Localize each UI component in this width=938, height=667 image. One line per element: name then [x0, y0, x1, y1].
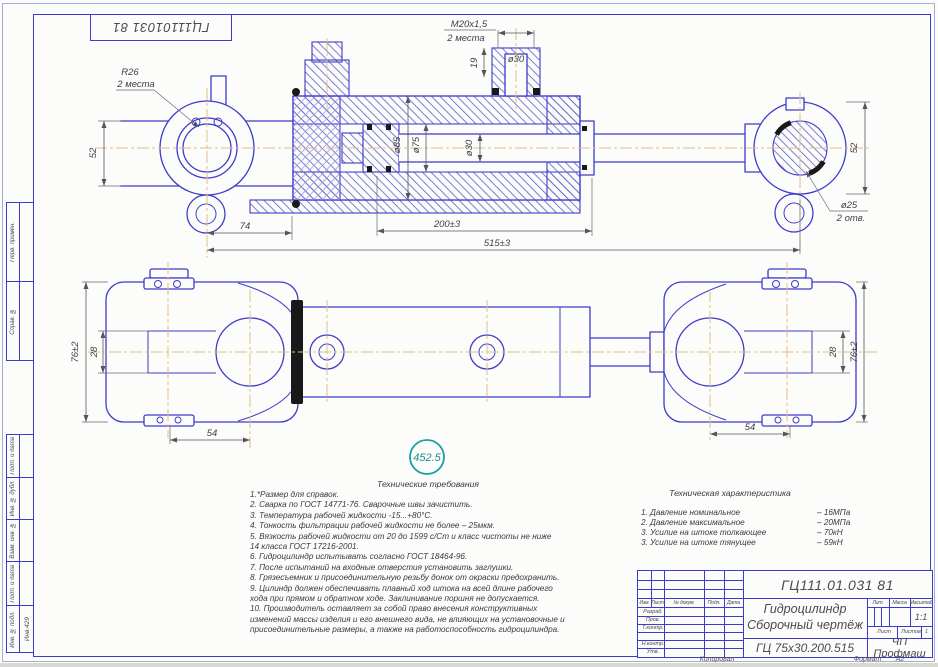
dim-label-200: 200±3 — [433, 219, 461, 230]
dim-label-515: 515±3 — [484, 238, 511, 249]
drawing-sheet: ГЦ11101031 81 Перв. примен. Справ. № Под… — [0, 0, 938, 667]
dim-label-m20-note: 2 места — [446, 33, 484, 44]
technical-requirements: 1.*Размер для справок. 2. Сварка по ГОСТ… — [250, 490, 580, 636]
dim-label-28-left: 28 — [89, 346, 100, 358]
dim-label-d75: ø75 — [411, 136, 422, 153]
dim-label-74: 74 — [240, 221, 251, 232]
dim-label-54-left: 54 — [207, 428, 218, 439]
treq-line: 1.*Размер для справок. — [250, 490, 580, 500]
tb-scale-value: 1:1 — [910, 607, 932, 626]
dim-label-d25: ø25 — [841, 200, 858, 211]
dim-label-d85: ø85 — [392, 136, 403, 153]
tb-product-name-2: Сборочный чертёж — [743, 616, 867, 634]
tb-mass-label: Масса — [889, 598, 910, 607]
treq-line: 10. Производитель оставляет за собой пра… — [250, 604, 580, 614]
position-balloon: 452.5 — [410, 440, 444, 474]
tb-col-izm: Изм. — [638, 598, 651, 607]
dim-label-r26: R26 — [121, 67, 139, 78]
tb-col-doc: № докум. — [664, 598, 704, 607]
treq-line: 7. После испытаний на входные отверстия … — [250, 563, 580, 573]
scan-edge — [0, 663, 938, 667]
plan-left-clevis — [106, 269, 300, 426]
treq-line: 3. Температура рабочей жидкости -15...+8… — [250, 511, 580, 521]
tb-sheet-label: Лист — [867, 626, 899, 638]
technical-characteristics-title: Техническая характеристика — [655, 488, 805, 498]
treq-line: 2. Сварка по ГОСТ 14771-76. Сварочные шв… — [250, 500, 580, 510]
treq-line: 4. Тонкость фильтрации рабочей жидкости … — [250, 521, 580, 531]
treq-line: присоединительные размеры, а также на ра… — [250, 625, 580, 635]
tchar-row: 3. Усилие на штоке тянущее – 59кН — [641, 538, 869, 548]
title-block: Изм. Лист № докум. Подп. Дата Разраб. Пр… — [637, 570, 933, 658]
treq-line: 6. Гидроцилиндр испытывать согласно ГОСТ… — [250, 552, 580, 562]
tb-col-list: Лист — [651, 598, 664, 607]
dim-label-76-left: 76±2 — [70, 341, 81, 363]
dim-label-52-right: 52 — [849, 142, 860, 153]
dim-label-19: 19 — [469, 57, 480, 68]
treq-line: 5. Вязкость рабочей жидкости от 20 до 15… — [250, 532, 580, 542]
treq-line: 9. Цилиндр должен обеспечивать плавный х… — [250, 584, 580, 594]
tb-sheets-value: 1 — [921, 626, 932, 638]
tb-designation: ГЦ 75х30.200.515 — [743, 638, 867, 657]
footer-copied-label: Копировал — [677, 656, 757, 663]
dim-label-54-right: 54 — [745, 422, 756, 433]
tb-doc-number: ГЦ111.01.031 81 — [743, 571, 932, 598]
footer-format-value: А2 — [888, 656, 912, 663]
footer-format-label: Формат — [845, 656, 890, 663]
plan-view — [106, 269, 856, 426]
dim-label-52-left: 52 — [88, 147, 99, 158]
technical-requirements-title: Технические требования — [348, 479, 508, 489]
tchar-row: 3. Усилие на штоке толкающее – 70кН — [641, 528, 869, 538]
dim-label-28-right: 28 — [828, 346, 839, 358]
dim-label-d30-port: ø30 — [508, 54, 525, 65]
balloon-number: 452.5 — [413, 452, 441, 464]
technical-characteristics: 1. Давление номинальное – 16МПа 2. Давле… — [641, 508, 869, 548]
dim-label-d30-rod: ø30 — [464, 139, 475, 156]
dim-label-76-right: 76±2 — [849, 341, 860, 363]
treq-line: 8. Грязесъемник и присоединительную резь… — [250, 573, 580, 583]
tb-row-razrab: Разраб. — [638, 607, 666, 616]
dim-label-m20: M20x1,5 — [451, 19, 488, 30]
dim-label-r26-note: 2 места — [116, 79, 154, 90]
main-section-view — [120, 42, 846, 233]
tb-company: ЧП Профмаш — [867, 638, 932, 657]
treq-line: изменений массы изделия и его внешнего в… — [250, 615, 580, 625]
tb-row-tkontr: Т.контр. — [638, 624, 666, 632]
tchar-row: 2. Давление максимальное – 20МПа — [641, 518, 869, 528]
tb-lit-label: Лит. — [867, 598, 889, 607]
tb-row-prov: Пров. — [638, 616, 666, 624]
tb-sheets-label: Листов — [897, 626, 923, 638]
dim-label-d25-note: 2 отв. — [836, 213, 866, 224]
tchar-row: 1. Давление номинальное – 16МПа — [641, 508, 869, 518]
tb-col-podp: Подп. — [704, 598, 724, 607]
tb-row-utv: Утв. — [638, 648, 666, 656]
right-rod-end-eye — [745, 98, 846, 232]
treq-line: хода при прямом и обратном ходе. Заклини… — [250, 594, 580, 604]
tb-scale-label: Масштаб — [910, 598, 932, 607]
treq-line: 14 класса ГОСТ 17216-2001. — [250, 542, 580, 552]
tb-row-nkontr: Н.контр. — [638, 640, 666, 648]
tb-col-data: Дата — [724, 598, 743, 607]
